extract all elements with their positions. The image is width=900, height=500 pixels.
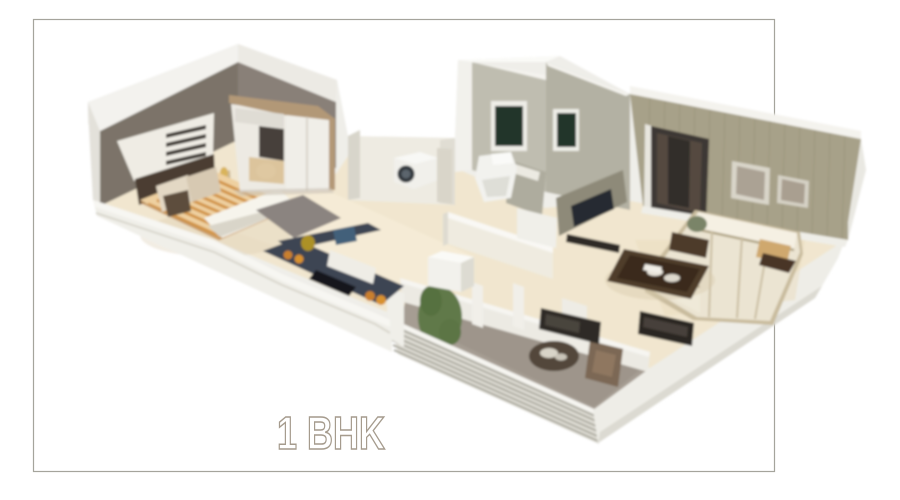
- svg-text:1 BHK: 1 BHK: [277, 407, 385, 459]
